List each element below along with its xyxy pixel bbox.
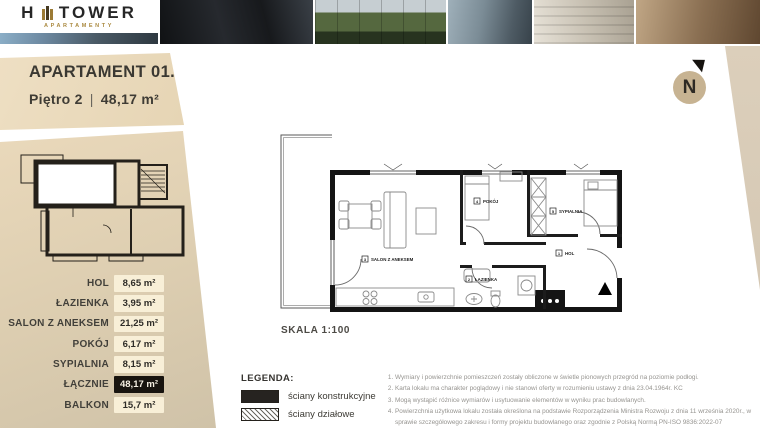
door-openings xyxy=(466,233,600,269)
brand-subtitle: APARTAMENTY xyxy=(44,23,114,29)
plan-label-pokoj: 4 POKÓJ xyxy=(474,198,499,204)
svg-text:SYPIALNIA: SYPIALNIA xyxy=(559,209,583,214)
logo-word-tower: TOWER xyxy=(59,4,137,21)
note-item: Powierzchnia użytkowa lokalu została okr… xyxy=(395,407,757,428)
brand-logo-wordmark: H TOWER xyxy=(21,4,137,21)
solid-wall-swatch xyxy=(241,390,279,403)
total-label: ŁĄCZNIE xyxy=(64,379,109,390)
apartment-title-banner: APARTAMENT 01.2 Piętro 2|48,17 m² xyxy=(0,50,262,132)
room-row-balkon: BALKON 15,7 m² xyxy=(0,397,164,414)
hatched-wall-swatch xyxy=(241,408,279,421)
room-label: ŁAZIENKA xyxy=(56,298,109,309)
room-area-value: 21,25 m² xyxy=(114,316,164,333)
tower-bars-icon xyxy=(42,6,53,20)
total-area-value: 48,17 m² xyxy=(114,376,164,393)
room-label: HOL xyxy=(87,278,109,289)
room-label: POKÓJ xyxy=(72,339,109,350)
north-arrow-icon xyxy=(692,54,710,73)
floor-label: Piętro 2 xyxy=(29,91,83,107)
svg-text:POKÓJ: POKÓJ xyxy=(483,199,499,204)
note-item: Mogą wystąpić różnice wymiarów i usytuow… xyxy=(395,396,757,406)
footnote-list: Wymiary i powierzchnie pomieszczeń zosta… xyxy=(383,373,757,428)
apartment-card-page: H TOWER APARTAMENTY APARTAMENT 01.2 Pięt… xyxy=(0,0,760,428)
svg-text:ŁAZIENKA: ŁAZIENKA xyxy=(475,277,498,282)
render-photo-glass-balcony xyxy=(160,0,313,44)
scale-label: SKALA 1:100 xyxy=(281,325,350,336)
room-label: BALKON xyxy=(64,400,109,411)
compass-north-badge: N xyxy=(673,71,706,104)
apartment-subtitle: Piętro 2|48,17 m² xyxy=(29,91,159,107)
plan-label-sypialnia: 5 SYPIALNIA xyxy=(550,208,583,214)
room-row-hol: HOL 8,65 m² xyxy=(0,275,164,292)
room-area-value: 3,95 m² xyxy=(114,295,164,312)
render-photo-green-balcony xyxy=(315,0,446,44)
room-area-value: 15,7 m² xyxy=(114,397,164,414)
render-photo-facade xyxy=(534,0,634,44)
entrance-arrow-icon xyxy=(598,282,612,295)
footnotes: Wymiary i powierzchnie pomieszczeń zosta… xyxy=(383,373,757,428)
compass: N xyxy=(668,57,714,107)
divider: | xyxy=(90,91,94,107)
balcony-outline xyxy=(281,135,332,308)
room-label: SYPIALNIA xyxy=(53,359,109,370)
svg-text:HOL: HOL xyxy=(565,251,575,256)
room-area-value: 8,65 m² xyxy=(114,275,164,292)
apartment-title: APARTAMENT 01.2 xyxy=(29,63,185,82)
room-row-lazienka: ŁAZIENKA 3,95 m² xyxy=(0,295,164,312)
render-photo-street-view xyxy=(448,0,532,44)
room-area-table: HOL 8,65 m² ŁAZIENKA 3,95 m² SALON Z ANE… xyxy=(0,275,164,417)
room-label: SALON Z ANEKSEM xyxy=(8,318,109,329)
apartment-floor-plan: 3 SALON Z ANEKSEM 4 POKÓJ 5 SYPIALNIA 1 … xyxy=(278,128,634,318)
floor-key-plan xyxy=(13,145,189,263)
plan-label-lazienka: 2 ŁAZIENKA xyxy=(466,276,498,282)
furniture xyxy=(336,172,617,307)
room-row-pokoj: POKÓJ 6,17 m² xyxy=(0,336,164,353)
room-area-value: 8,15 m² xyxy=(114,356,164,373)
plan-label-salon: 3 SALON Z ANEKSEM xyxy=(362,256,414,262)
logo-letter-h: H xyxy=(21,4,36,21)
room-row-sypialnia: SYPIALNIA 8,15 m² xyxy=(0,356,164,373)
note-item: Karta lokalu ma charakter poglądowy i ni… xyxy=(395,384,757,394)
plan-label-hol: 1 HOL xyxy=(556,250,575,256)
render-photo-interior xyxy=(636,0,760,44)
total-area-label: 48,17 m² xyxy=(101,91,159,107)
brand-logo: H TOWER APARTAMENTY xyxy=(0,0,158,33)
room-area-value: 6,17 m² xyxy=(114,336,164,353)
sidebar: HOL 8,65 m² ŁAZIENKA 3,95 m² SALON Z ANE… xyxy=(0,128,232,428)
room-row-total: ŁĄCZNIE 48,17 m² xyxy=(0,376,164,393)
room-row-salon: SALON Z ANEKSEM 21,25 m² xyxy=(0,316,164,333)
note-item: Wymiary i powierzchnie pomieszczeń zosta… xyxy=(395,373,757,383)
legend-item-label: ściany konstrukcyjne xyxy=(288,391,376,402)
svg-text:SALON Z ANEKSEM: SALON Z ANEKSEM xyxy=(371,257,414,262)
legend-item-label: ściany działowe xyxy=(288,409,355,420)
